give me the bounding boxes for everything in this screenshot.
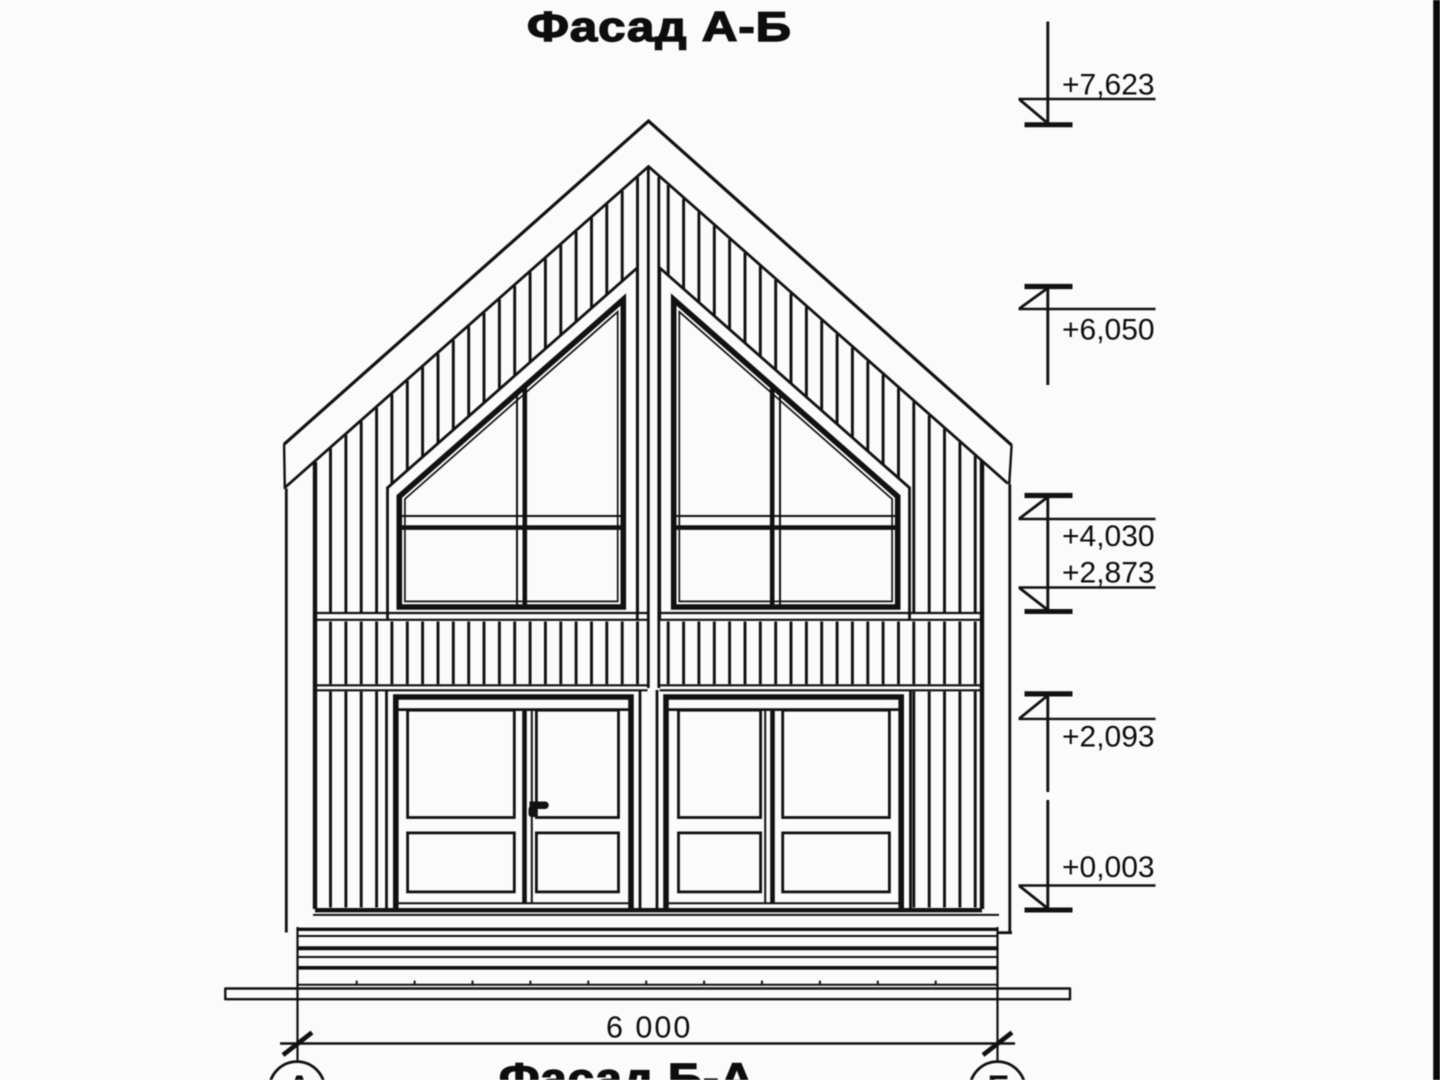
svg-text:Фасад Б-А: Фасад Б-А	[499, 1055, 755, 1080]
svg-text:Б: Б	[988, 1069, 1012, 1080]
svg-text:+4,030: +4,030	[1062, 520, 1155, 553]
svg-text:+0,003: +0,003	[1062, 851, 1155, 884]
svg-text:Фасад А-Б: Фасад А-Б	[527, 3, 792, 50]
svg-text:А: А	[287, 1069, 312, 1080]
svg-text:+2,873: +2,873	[1062, 557, 1155, 590]
svg-text:6 000: 6 000	[606, 1011, 692, 1045]
svg-text:+7,623: +7,623	[1062, 69, 1155, 102]
svg-text:+6,050: +6,050	[1062, 314, 1155, 347]
svg-text:+2,093: +2,093	[1062, 721, 1155, 754]
